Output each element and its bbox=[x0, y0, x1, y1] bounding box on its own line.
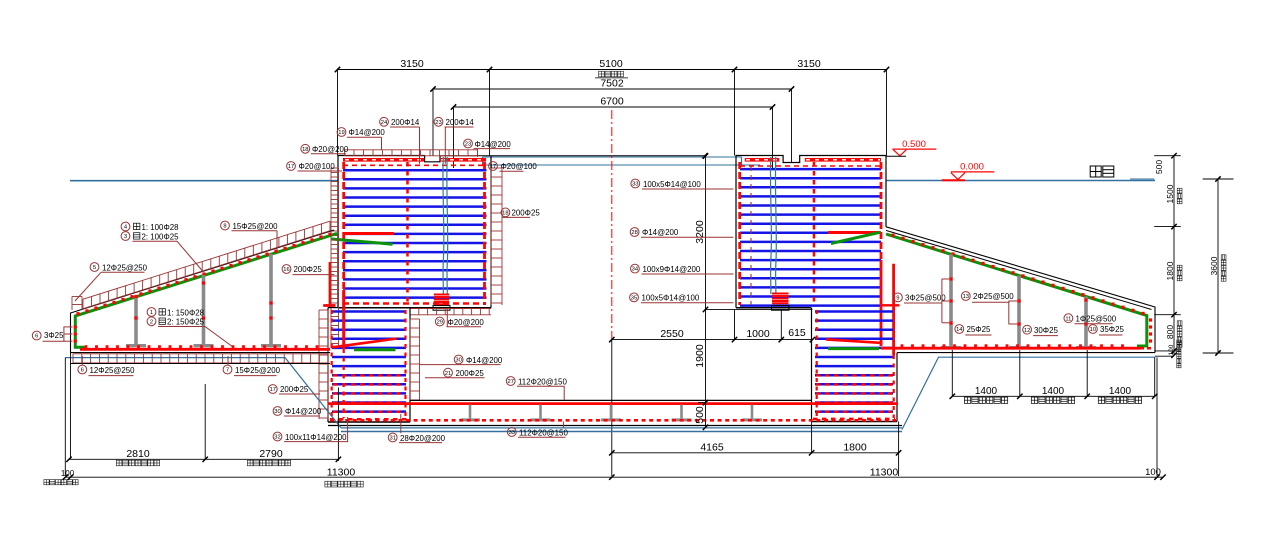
svg-text:2790: 2790 bbox=[259, 448, 283, 460]
svg-text:15Φ25@200: 15Φ25@200 bbox=[233, 222, 279, 231]
svg-text:33: 33 bbox=[632, 182, 638, 188]
svg-text:3Φ25@500: 3Φ25@500 bbox=[905, 294, 946, 303]
svg-text:1500: 1500 bbox=[1165, 184, 1175, 203]
svg-text:1800: 1800 bbox=[843, 442, 867, 454]
svg-text:11: 11 bbox=[1065, 316, 1071, 322]
svg-text:30Φ25: 30Φ25 bbox=[1034, 326, 1058, 335]
svg-text:500: 500 bbox=[1154, 160, 1164, 174]
svg-text:11300: 11300 bbox=[870, 466, 899, 478]
svg-text:1400: 1400 bbox=[1042, 386, 1065, 397]
svg-text:Φ14@200: Φ14@200 bbox=[475, 140, 512, 149]
svg-text:200Φ25: 200Φ25 bbox=[512, 209, 541, 218]
svg-text:7502: 7502 bbox=[600, 78, 624, 90]
svg-text:Φ20@200: Φ20@200 bbox=[448, 318, 485, 327]
svg-text:0.000: 0.000 bbox=[960, 162, 984, 173]
svg-text:2810: 2810 bbox=[126, 448, 150, 460]
svg-text:100x5Φ14@100: 100x5Φ14@100 bbox=[643, 180, 701, 189]
svg-text:30: 30 bbox=[455, 358, 461, 364]
svg-text:14: 14 bbox=[956, 327, 963, 333]
svg-text:100x9Φ14@200: 100x9Φ14@200 bbox=[643, 265, 701, 274]
svg-text:10: 10 bbox=[1090, 327, 1096, 333]
svg-text:3: 3 bbox=[124, 234, 127, 240]
svg-text:1: 150Φ28: 1: 150Φ28 bbox=[167, 308, 205, 317]
svg-text:100: 100 bbox=[61, 469, 75, 478]
svg-text:200Φ25: 200Φ25 bbox=[280, 385, 309, 394]
svg-text:3150: 3150 bbox=[797, 58, 821, 70]
svg-text:Φ20@100: Φ20@100 bbox=[299, 162, 336, 171]
svg-text:1800: 1800 bbox=[1165, 261, 1175, 280]
svg-text:1: 1 bbox=[150, 310, 153, 316]
svg-text:100x5Φ14@100: 100x5Φ14@100 bbox=[642, 294, 700, 303]
svg-text:17: 17 bbox=[270, 387, 276, 393]
svg-text:6: 6 bbox=[81, 368, 84, 374]
svg-text:13: 13 bbox=[963, 294, 969, 300]
svg-text:17: 17 bbox=[288, 164, 294, 170]
svg-text:Φ20@200: Φ20@200 bbox=[312, 145, 349, 154]
svg-text:5: 5 bbox=[93, 265, 96, 271]
svg-text:3200: 3200 bbox=[694, 220, 706, 244]
svg-text:29: 29 bbox=[437, 320, 443, 326]
svg-text:11300: 11300 bbox=[327, 466, 356, 478]
svg-text:12: 12 bbox=[1024, 328, 1030, 334]
svg-text:Φ14@200: Φ14@200 bbox=[349, 128, 386, 137]
svg-text:800: 800 bbox=[1165, 325, 1175, 339]
svg-text:35Φ25: 35Φ25 bbox=[1100, 325, 1124, 334]
svg-text:28: 28 bbox=[631, 230, 637, 236]
svg-text:4165: 4165 bbox=[700, 442, 724, 454]
svg-text:24: 24 bbox=[381, 120, 388, 126]
svg-text:16: 16 bbox=[283, 267, 289, 273]
svg-text:23: 23 bbox=[435, 120, 441, 126]
svg-text:2: 100Φ25: 2: 100Φ25 bbox=[142, 232, 180, 241]
svg-text:Φ14@200: Φ14@200 bbox=[642, 228, 679, 237]
svg-text:18: 18 bbox=[302, 147, 308, 153]
svg-text:200Φ14: 200Φ14 bbox=[446, 118, 475, 127]
svg-text:9: 9 bbox=[896, 296, 899, 302]
svg-text:200Φ14: 200Φ14 bbox=[391, 118, 420, 127]
svg-text:32: 32 bbox=[274, 435, 280, 441]
svg-text:7: 7 bbox=[226, 368, 229, 374]
svg-text:112Φ20@150: 112Φ20@150 bbox=[518, 377, 567, 386]
svg-text:Φ14@200: Φ14@200 bbox=[466, 356, 503, 365]
svg-text:35: 35 bbox=[631, 296, 637, 302]
svg-text:500: 500 bbox=[694, 406, 706, 424]
svg-text:27: 27 bbox=[507, 379, 513, 385]
svg-text:2Φ25@500: 2Φ25@500 bbox=[973, 292, 1014, 301]
svg-text:21: 21 bbox=[445, 371, 451, 377]
svg-text:17: 17 bbox=[490, 164, 496, 170]
svg-text:6: 6 bbox=[35, 334, 38, 340]
svg-text:200Φ25: 200Φ25 bbox=[294, 265, 323, 274]
svg-text:1400: 1400 bbox=[1109, 386, 1132, 397]
svg-text:12Φ25@250: 12Φ25@250 bbox=[90, 366, 136, 375]
svg-text:100x11Φ14@200: 100x11Φ14@200 bbox=[285, 433, 347, 442]
svg-text:31: 31 bbox=[389, 436, 395, 442]
svg-text:100: 100 bbox=[1168, 344, 1175, 355]
svg-text:1: 100Φ28: 1: 100Φ28 bbox=[142, 223, 180, 232]
svg-text:200Φ25: 200Φ25 bbox=[456, 369, 485, 378]
svg-text:112Φ20@150: 112Φ20@150 bbox=[519, 428, 568, 437]
svg-text:2: 2 bbox=[150, 319, 153, 325]
svg-text:Φ20@100: Φ20@100 bbox=[501, 162, 538, 171]
svg-text:Φ14@200: Φ14@200 bbox=[285, 407, 322, 416]
svg-text:28Φ20@200: 28Φ20@200 bbox=[400, 434, 446, 443]
svg-text:3150: 3150 bbox=[400, 58, 424, 70]
svg-text:18: 18 bbox=[502, 211, 508, 217]
svg-text:0.500: 0.500 bbox=[902, 139, 926, 150]
svg-text:1000: 1000 bbox=[746, 328, 770, 340]
svg-text:19: 19 bbox=[338, 130, 344, 136]
svg-text:34: 34 bbox=[632, 267, 639, 273]
svg-text:30: 30 bbox=[274, 409, 280, 415]
svg-text:6700: 6700 bbox=[600, 96, 624, 108]
svg-text:8: 8 bbox=[223, 224, 226, 230]
svg-text:615: 615 bbox=[788, 327, 806, 339]
svg-text:23: 23 bbox=[465, 142, 471, 148]
svg-text:5100: 5100 bbox=[599, 58, 623, 70]
svg-text:25Φ25: 25Φ25 bbox=[967, 325, 991, 334]
svg-text:1Φ25@500: 1Φ25@500 bbox=[1076, 314, 1117, 323]
svg-text:3Φ25: 3Φ25 bbox=[44, 331, 64, 340]
svg-text:1400: 1400 bbox=[975, 386, 998, 397]
svg-text:1900: 1900 bbox=[694, 344, 706, 368]
svg-text:100: 100 bbox=[1145, 467, 1161, 478]
svg-text:15Φ25@200: 15Φ25@200 bbox=[235, 366, 281, 375]
svg-text:2: 150Φ25: 2: 150Φ25 bbox=[167, 318, 205, 327]
svg-text:33: 33 bbox=[509, 430, 515, 436]
svg-text:2550: 2550 bbox=[660, 328, 684, 340]
svg-text:12Φ25@250: 12Φ25@250 bbox=[102, 263, 148, 272]
svg-text:3600: 3600 bbox=[1209, 256, 1219, 275]
